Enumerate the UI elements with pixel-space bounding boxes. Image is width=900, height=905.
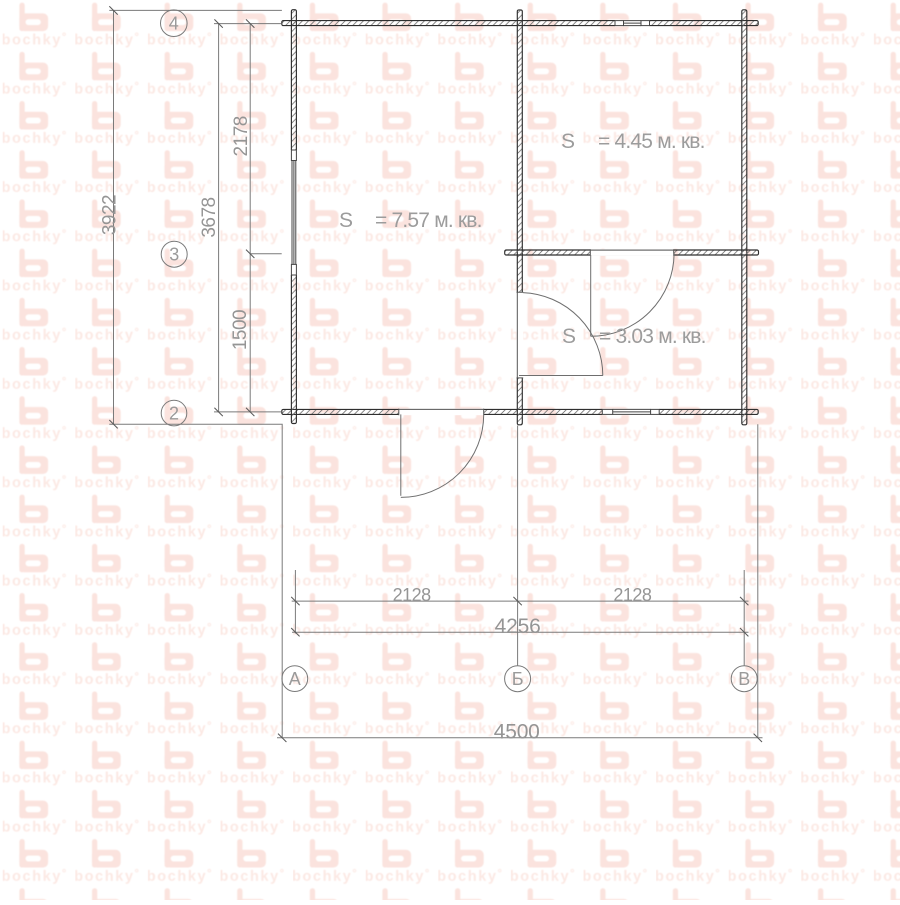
svg-text:3678: 3678 [199, 197, 220, 237]
svg-text:Б: Б [512, 669, 524, 689]
svg-text:В: В [738, 669, 750, 689]
svg-text:4256: 4256 [495, 615, 541, 638]
svg-text:4500: 4500 [494, 721, 540, 744]
svg-text:А: А [289, 669, 301, 689]
svg-text:3922: 3922 [100, 195, 121, 235]
svg-text:2128: 2128 [613, 585, 652, 605]
svg-text:1500: 1500 [230, 310, 251, 350]
svg-text:4: 4 [169, 14, 179, 34]
svg-text:2: 2 [169, 403, 179, 423]
svg-text:2178: 2178 [231, 116, 252, 156]
svg-text:3: 3 [169, 245, 179, 265]
svg-text:2128: 2128 [393, 585, 432, 605]
